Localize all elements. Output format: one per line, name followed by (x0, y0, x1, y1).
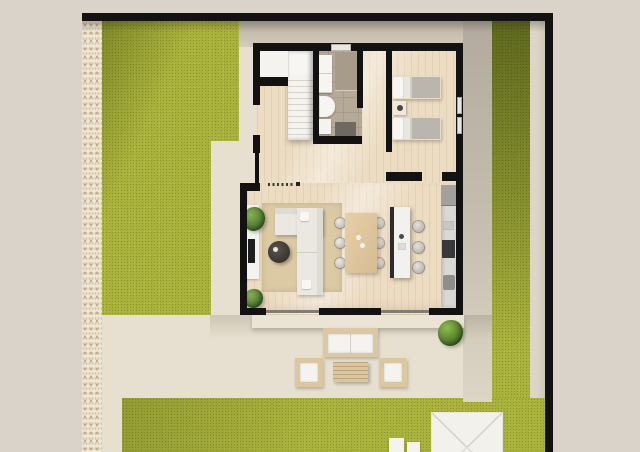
tv (248, 239, 255, 263)
wall-bottom-b (319, 308, 381, 315)
kitchen-sink (443, 221, 454, 230)
bed-2 (392, 117, 441, 140)
bed-2-pillow (393, 118, 403, 139)
nightstand-lamp (397, 105, 403, 111)
sun-lounger-2 (407, 442, 420, 452)
sliding-door-1 (266, 310, 319, 313)
wall-bottom-a (240, 308, 266, 315)
armchair-right-cushion (384, 363, 402, 382)
bed-1 (392, 76, 441, 99)
bar-stool (413, 242, 424, 253)
island-faucet (399, 234, 404, 239)
wall-door-jamb (253, 135, 260, 153)
coffee-table (268, 241, 290, 263)
wall-bathroom-bottom (313, 136, 362, 144)
wall-bedroom-bottom-a (386, 172, 422, 181)
wall-left-upper (253, 43, 260, 105)
window-bathroom (331, 44, 351, 51)
terrace-step (252, 315, 464, 328)
dining-table (345, 213, 377, 273)
sofa-pillow-2 (302, 280, 311, 289)
pergola (431, 412, 503, 452)
lawn-right-strip (492, 21, 530, 402)
sun-lounger-1 (389, 438, 404, 452)
wall-right (456, 43, 463, 315)
sofa-pillow (300, 212, 309, 221)
lawn-left-upper-extension (211, 21, 239, 141)
dining-chair (335, 238, 345, 248)
cooktop (442, 240, 455, 258)
armchair-left-cushion (300, 363, 318, 382)
outdoor-sofa-cushions (328, 334, 373, 353)
dining-chair (335, 258, 345, 268)
wall-closet (257, 77, 288, 86)
outdoor-sofa (323, 328, 378, 357)
doormat-dots (268, 183, 294, 186)
wall-bathroom-side (357, 43, 363, 108)
doormat-end-dot (296, 182, 300, 186)
staircase (288, 51, 313, 140)
outdoor-coffee-table (333, 362, 368, 382)
window-bedroom-a (457, 97, 462, 114)
window-bedroom-b (457, 117, 462, 134)
boundary-wall-right (545, 13, 553, 452)
storage-closet (260, 51, 288, 77)
lawn-left (102, 21, 211, 315)
nightstand (393, 101, 406, 115)
wall-left-mid (255, 153, 259, 185)
concrete-strip-wallside (530, 13, 545, 398)
bed-2-blanket (410, 118, 440, 139)
boundary-wall-top (82, 13, 553, 21)
concrete-strip-right (463, 21, 492, 402)
wall-shadow-top (82, 21, 553, 32)
bed-1-blanket (410, 77, 440, 98)
wall-bedroom-side (386, 43, 392, 152)
dining-chair (335, 218, 345, 228)
fridge (441, 185, 456, 206)
bar-stool (413, 262, 424, 273)
wall-bottom-c (429, 308, 463, 315)
sliding-door-2 (381, 310, 429, 313)
gravel-path (82, 21, 102, 452)
coffee-table-dish (273, 247, 278, 252)
wall-left-lower (240, 183, 247, 315)
kitchen-counter (441, 185, 456, 307)
bed-1-pillow (393, 77, 403, 98)
floor-plan-render (0, 0, 640, 452)
table-dish-2 (360, 243, 365, 248)
bar-stool (413, 221, 424, 232)
dishwasher (443, 275, 455, 290)
island-sink (398, 243, 406, 250)
table-dish (356, 235, 361, 240)
kitchen-island (390, 207, 410, 278)
outdoor-armchair-left (295, 358, 323, 387)
wall-stair-side (313, 43, 319, 143)
outdoor-armchair-right (379, 358, 407, 387)
